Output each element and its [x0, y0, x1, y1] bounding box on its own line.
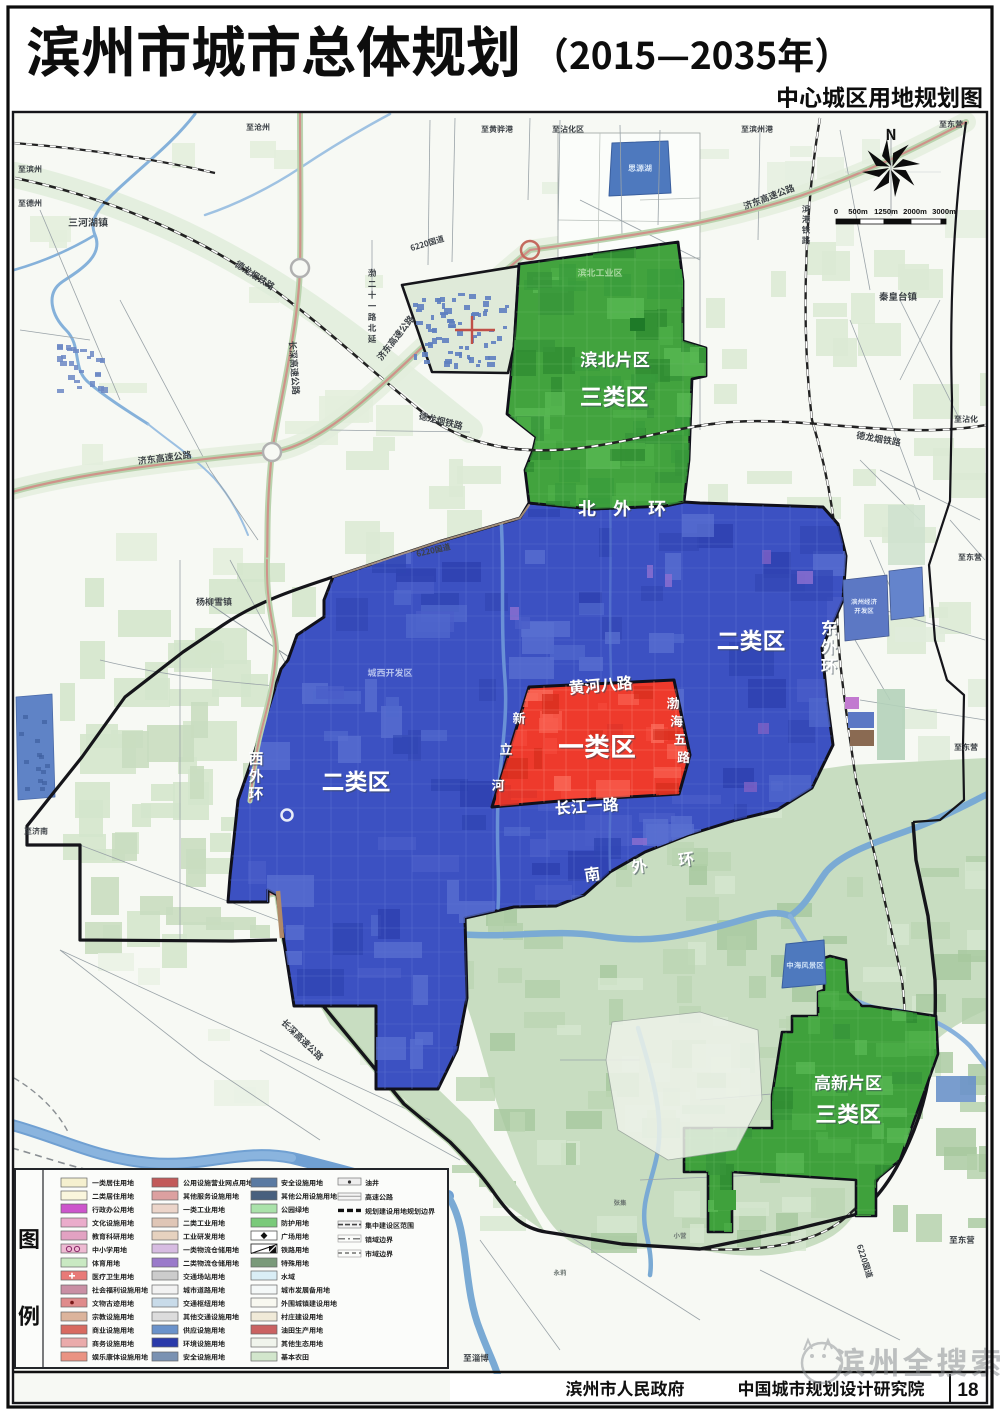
svg-text:18: 18 [957, 1380, 978, 1401]
svg-text:500m: 500m [848, 207, 868, 216]
svg-text:3000m: 3000m [932, 207, 956, 216]
svg-text:1250m: 1250m [874, 207, 898, 216]
svg-text:2000m: 2000m [903, 207, 927, 216]
svg-text:0: 0 [834, 207, 838, 216]
